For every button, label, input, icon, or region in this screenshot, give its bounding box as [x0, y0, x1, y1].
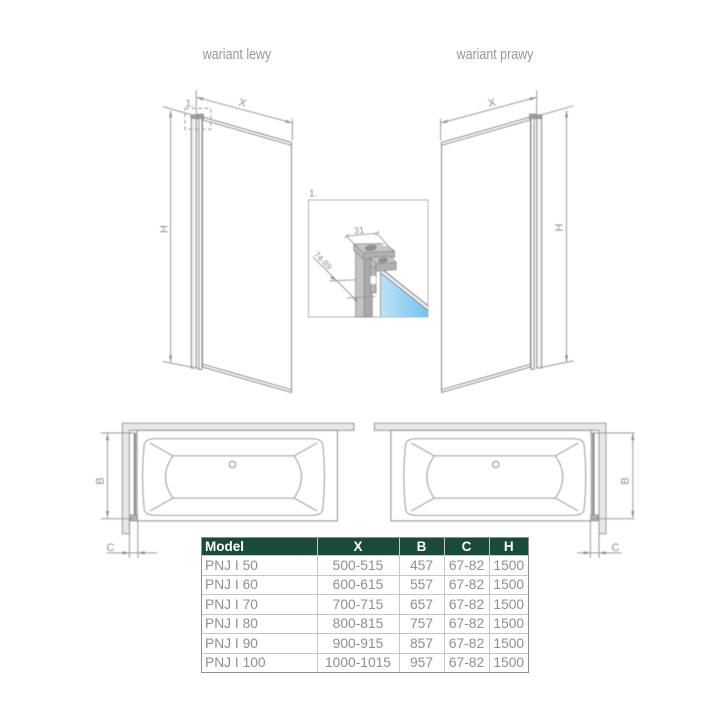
svg-text:31: 31	[353, 225, 365, 237]
svg-text:C: C	[612, 542, 620, 554]
svg-text:B: B	[95, 477, 107, 484]
svg-text:H: H	[554, 223, 566, 231]
svg-text:X: X	[237, 97, 248, 111]
svg-text:1.: 1.	[186, 99, 194, 110]
svg-text:H: H	[159, 225, 171, 233]
svg-text:B: B	[620, 477, 632, 484]
svg-text:1.: 1.	[309, 189, 317, 200]
svg-text:C: C	[107, 542, 115, 554]
svg-text:X: X	[487, 96, 498, 110]
